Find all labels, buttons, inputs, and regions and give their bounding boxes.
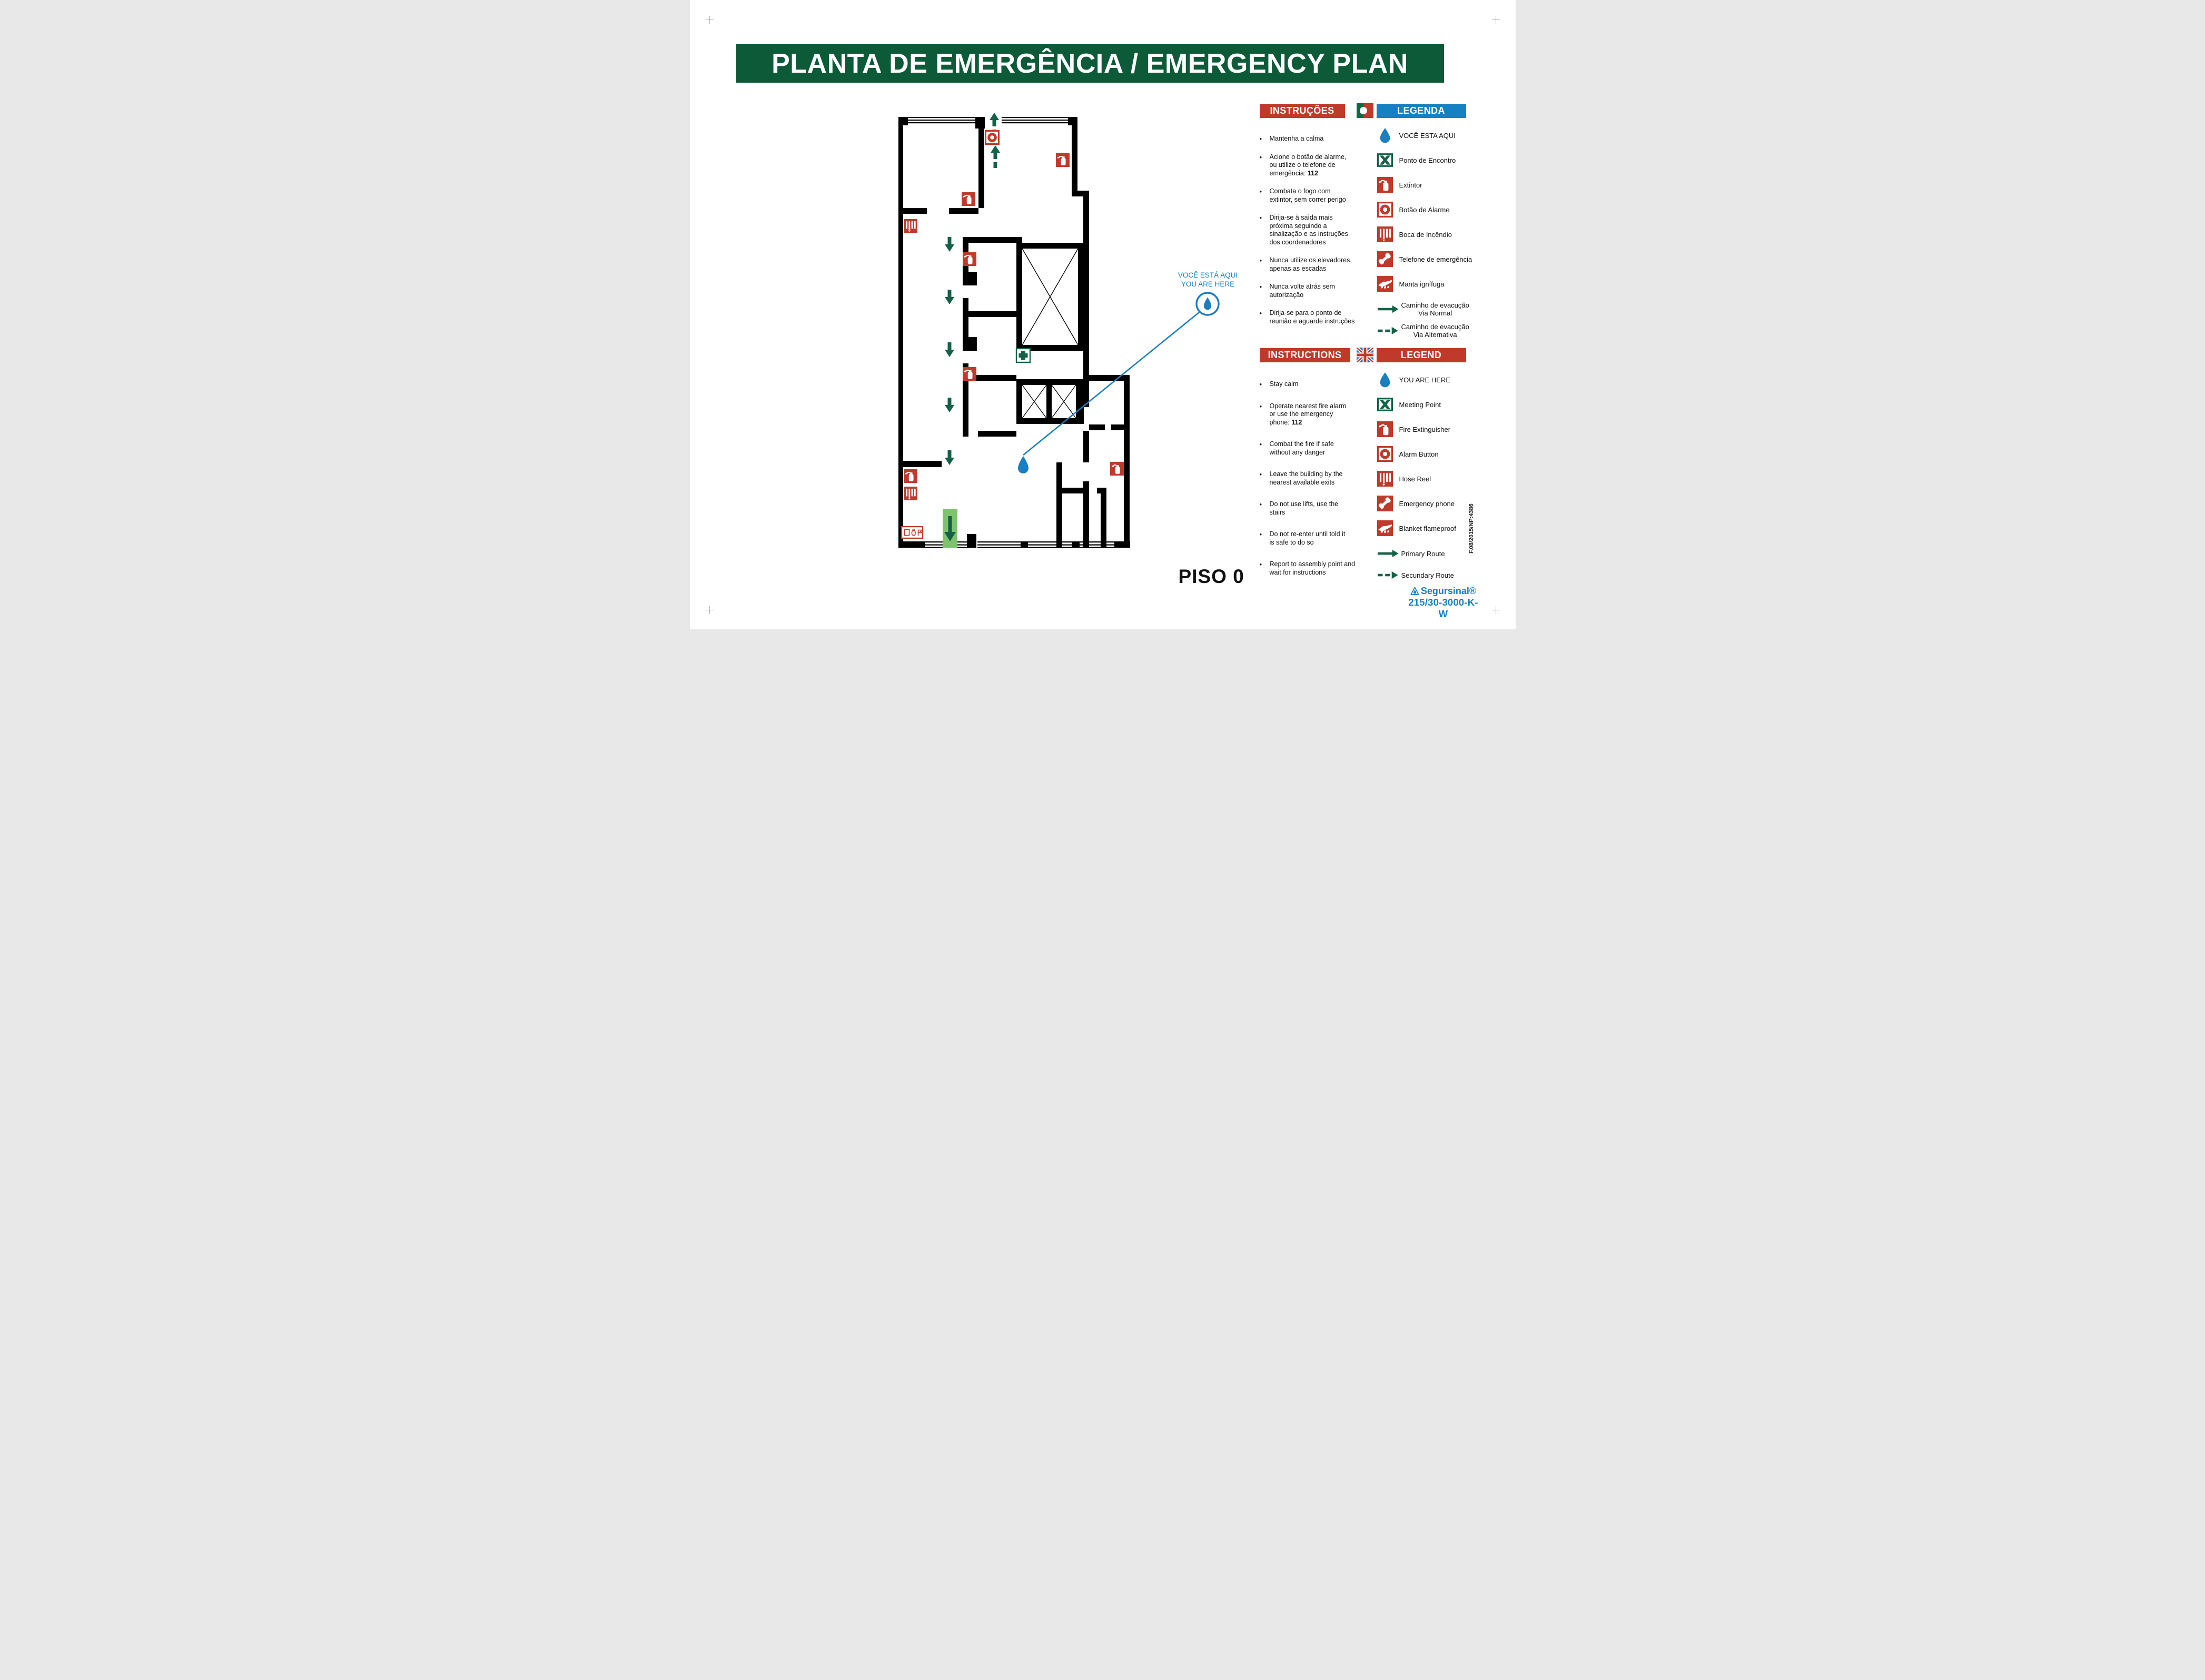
- legend-item-label: VOCÊ ESTA AQUI: [1399, 132, 1456, 140]
- legend-item: Primary Route: [1377, 544, 1475, 563]
- floor-plan-walls: [898, 117, 1130, 548]
- first-aid-icon: [1016, 349, 1030, 362]
- instruction-item: •Report to assembly point and wait for i…: [1260, 560, 1368, 577]
- legend-item: Emergency phone: [1377, 495, 1475, 512]
- segursinal-logo-icon: [1410, 587, 1419, 596]
- instruction-text: Combat the fire if safe without any dang…: [1270, 440, 1334, 457]
- evac-arrow-down: [945, 342, 954, 357]
- brand-name: Segursinal®: [1421, 586, 1476, 597]
- legend-item: Caminho de evacução Via Normal: [1377, 300, 1475, 319]
- reference-code: F.08/2015/NP:4386: [1468, 456, 1475, 554]
- bullet-dot: •: [1260, 470, 1270, 487]
- legend-item-label: Ponto de Encontro: [1399, 156, 1456, 164]
- fire-extinguisher-icon: [1056, 153, 1070, 167]
- instruction-item: •Leave the building by the nearest avail…: [1260, 470, 1368, 487]
- instruction-text: Acione o botão de alarme, ou utilize o t…: [1270, 153, 1347, 178]
- fire-extinguisher-icon: [1377, 177, 1393, 193]
- instruction-text: Do not re-enter until told it is safe to…: [1270, 530, 1346, 547]
- legend-item: Hose Reel: [1377, 470, 1475, 488]
- instruction-text: Nunca utilize os elevadores, apenas as e…: [1270, 256, 1352, 273]
- legend-en-header: LEGEND: [1377, 348, 1466, 362]
- instruction-text: Dirija-se à saìda mais próxima seguindo …: [1270, 214, 1348, 246]
- legend-item-label: Boca de Incêndio: [1399, 231, 1452, 239]
- legend-pt-header: LEGENDA: [1377, 104, 1466, 118]
- legend-item-label: Extintor: [1399, 181, 1422, 189]
- portugal-flag-icon: [1357, 103, 1373, 118]
- instructions-en-list: •Stay calm•Operate nearest fire alarm or…: [1260, 380, 1368, 590]
- instructions-en-header: INSTRUCTIONS: [1260, 348, 1350, 362]
- crop-mark: [1496, 606, 1496, 614]
- hose-reel-icon: [1377, 226, 1393, 242]
- crop-mark: [1496, 16, 1496, 24]
- secondary-route-arrow-icon: [1377, 570, 1399, 580]
- instruction-text: Report to assembly point and wait for in…: [1270, 560, 1356, 577]
- legend-item: Meeting Point: [1377, 396, 1475, 413]
- callout-line-en: YOU ARE HERE: [1165, 280, 1251, 289]
- elevator-shaft: [1016, 243, 1084, 351]
- instruction-item: •Mantenha a calma: [1260, 135, 1368, 143]
- evac-arrow-down: [945, 450, 954, 465]
- instruction-item: •Nunca volte atrás sem autorização: [1260, 283, 1368, 299]
- legend-item-label: Caminho de evacução Via Normal: [1401, 301, 1469, 317]
- bullet-dot: •: [1260, 153, 1270, 178]
- secondary-route-arrow-icon: [1377, 325, 1399, 336]
- legend-item: Secundary Route: [1377, 566, 1475, 585]
- legend-item-label: Meeting Point: [1399, 401, 1441, 409]
- instruction-text: Operate nearest fire alarm or use the em…: [1270, 402, 1347, 427]
- instruction-item: •Dirija-se à saìda mais próxima seguindo…: [1260, 214, 1368, 246]
- legend-item-label: Emergency phone: [1399, 500, 1455, 508]
- emergency-phone-icon: [1377, 251, 1393, 267]
- instruction-text: Do not use lifts, use the stairs: [1270, 500, 1339, 517]
- legend-item-label: Fire Extinguisher: [1399, 426, 1451, 433]
- instruction-text: Nunca volte atrás sem autorização: [1270, 283, 1335, 299]
- callout-line-pt: VOCÊ ESTÁ AQUI: [1165, 271, 1251, 280]
- bullet-dot: •: [1260, 283, 1270, 299]
- bullet-dot: •: [1260, 402, 1270, 427]
- you-are-here-drop-icon: [1377, 127, 1393, 143]
- legend-item: Fire Extinguisher: [1377, 420, 1475, 438]
- legend-item: Manta ignífuga: [1377, 275, 1475, 293]
- instructions-pt-list: •Mantenha a calma•Acione o botão de alar…: [1260, 135, 1368, 335]
- bullet-dot: •: [1260, 135, 1270, 143]
- legend-item-label: Telefone de emergência: [1399, 255, 1472, 263]
- instruction-text: Mantenha a calma: [1270, 135, 1324, 143]
- primary-route-arrow-icon: [1377, 548, 1399, 559]
- fire-extinguisher-icon: [1377, 421, 1393, 437]
- fire-blanket-icon: [1377, 520, 1393, 536]
- legend-item: Telefone de emergência: [1377, 250, 1475, 268]
- meeting-point-icon: [1377, 152, 1393, 168]
- alarm-button-icon: [1377, 446, 1393, 462]
- legend-item: Botão de Alarme: [1377, 201, 1475, 219]
- legend-item: Blanket flameproof: [1377, 519, 1475, 537]
- legend-en-list: YOU ARE HEREMeeting PointFire Extinguish…: [1377, 371, 1475, 587]
- alarm-button-icon: [1377, 202, 1393, 218]
- instructions-pt-header: INSTRUÇÕES: [1260, 104, 1345, 118]
- legend-pt-list: VOCÊ ESTA AQUIPonto de EncontroExtintorB…: [1377, 126, 1475, 343]
- crop-mark: [709, 16, 710, 24]
- you-are-here-callout: VOCÊ ESTÁ AQUI YOU ARE HERE: [1165, 271, 1251, 289]
- page-title: PLANTA DE EMERGÊNCIA / EMERGENCY PLAN: [736, 44, 1444, 83]
- instruction-item: •Acione o botão de alarme, ou utilize o …: [1260, 153, 1368, 178]
- evacuation-arrows: [944, 113, 1000, 541]
- emergency-plan-poster: PLANTA DE EMERGÊNCIA / EMERGENCY PLAN: [690, 0, 1516, 629]
- hose-reel-icon: [904, 487, 917, 500]
- legend-item: Alarm Button: [1377, 445, 1475, 463]
- bullet-dot: •: [1260, 380, 1270, 389]
- instruction-text: Combata o fogo com extintor, sem correr …: [1270, 187, 1346, 204]
- instruction-text: Stay calm: [1270, 380, 1299, 389]
- fire-extinguisher-icon: [963, 252, 976, 266]
- hose-reel-icon: [1377, 471, 1393, 487]
- evac-arrow-down: [945, 398, 954, 412]
- legend-item-label: Manta ignífuga: [1399, 280, 1445, 288]
- brand-block: Segursinal® 215/30-3000-K-W: [1404, 586, 1483, 620]
- uk-flag-icon: [1357, 348, 1373, 362]
- legend-item: VOCÊ ESTA AQUI: [1377, 126, 1475, 144]
- fire-extinguisher-icon: [1110, 462, 1124, 476]
- fire-extinguisher-icon: [904, 469, 917, 483]
- legend-item-label: Secundary Route: [1401, 571, 1454, 579]
- legend-item-label: Botão de Alarme: [1399, 206, 1450, 214]
- elevators: [1016, 379, 1084, 424]
- fire-blanket-icon: [1377, 276, 1393, 292]
- bullet-dot: •: [1260, 500, 1270, 517]
- bullet-dot: •: [1260, 440, 1270, 457]
- bullet-dot: •: [1260, 214, 1270, 246]
- legend-item: Boca de Incêndio: [1377, 225, 1475, 243]
- legend-item: Extintor: [1377, 176, 1475, 194]
- crop-mark: [709, 606, 710, 614]
- floor-plan: [898, 113, 1130, 552]
- instruction-item: •Operate nearest fire alarm or use the e…: [1260, 402, 1368, 427]
- primary-route-arrow-icon: [1377, 304, 1399, 314]
- legend-item-label: Caminho de evacução Via Alternativa: [1401, 323, 1469, 339]
- evac-arrow-down: [945, 290, 954, 304]
- bullet-dot: •: [1260, 256, 1270, 273]
- product-code: 215/30-3000-K-W: [1404, 597, 1483, 620]
- bullet-dot: •: [1260, 309, 1270, 325]
- instruction-item: •Combata o fogo com extintor, sem correr…: [1260, 187, 1368, 204]
- floor-label: PISO 0: [1179, 566, 1244, 588]
- emergency-phone-icon: [1377, 496, 1393, 511]
- fire-extinguisher-icon: [963, 367, 976, 381]
- fire-extinguisher-icon: [962, 192, 975, 206]
- you-are-here-drop-icon: [1377, 372, 1393, 388]
- legend-item: YOU ARE HERE: [1377, 371, 1475, 389]
- instruction-item: •Do not re-enter until told it is safe t…: [1260, 530, 1368, 547]
- legend-item: Ponto de Encontro: [1377, 151, 1475, 169]
- instruction-item: •Do not use lifts, use the stairs: [1260, 500, 1368, 517]
- instruction-text: Dirija-se para o ponto de reunião e agua…: [1270, 309, 1355, 325]
- fire-point-sign: [902, 527, 923, 538]
- bullet-dot: •: [1260, 560, 1270, 577]
- instruction-item: •Nunca utilize os elevadores, apenas as …: [1260, 256, 1368, 273]
- you-are-here-drop-icon: [1018, 456, 1029, 473]
- instruction-item: •Dirija-se para o ponto de reunião e agu…: [1260, 309, 1368, 325]
- instruction-text: Leave the building by the nearest availa…: [1270, 470, 1343, 487]
- meeting-point-icon: [1377, 397, 1393, 412]
- hose-reel-icon: [904, 219, 917, 233]
- evac-arrow-down: [945, 237, 954, 252]
- evac-arrow-up: [991, 145, 1000, 168]
- legend-item-label: Alarm Button: [1399, 450, 1439, 458]
- legend-item-label: Primary Route: [1401, 550, 1445, 558]
- instruction-item: •Combat the fire if safe without any dan…: [1260, 440, 1368, 457]
- bullet-dot: •: [1260, 530, 1270, 547]
- alarm-button-icon: [985, 130, 1000, 145]
- legend-item-label: Blanket flameproof: [1399, 525, 1456, 532]
- legend-item-label: Hose Reel: [1399, 475, 1431, 483]
- legend-item: Caminho de evacução Via Alternativa: [1377, 321, 1475, 340]
- legend-item-label: YOU ARE HERE: [1399, 376, 1451, 384]
- bullet-dot: •: [1260, 187, 1270, 204]
- instruction-item: •Stay calm: [1260, 380, 1368, 389]
